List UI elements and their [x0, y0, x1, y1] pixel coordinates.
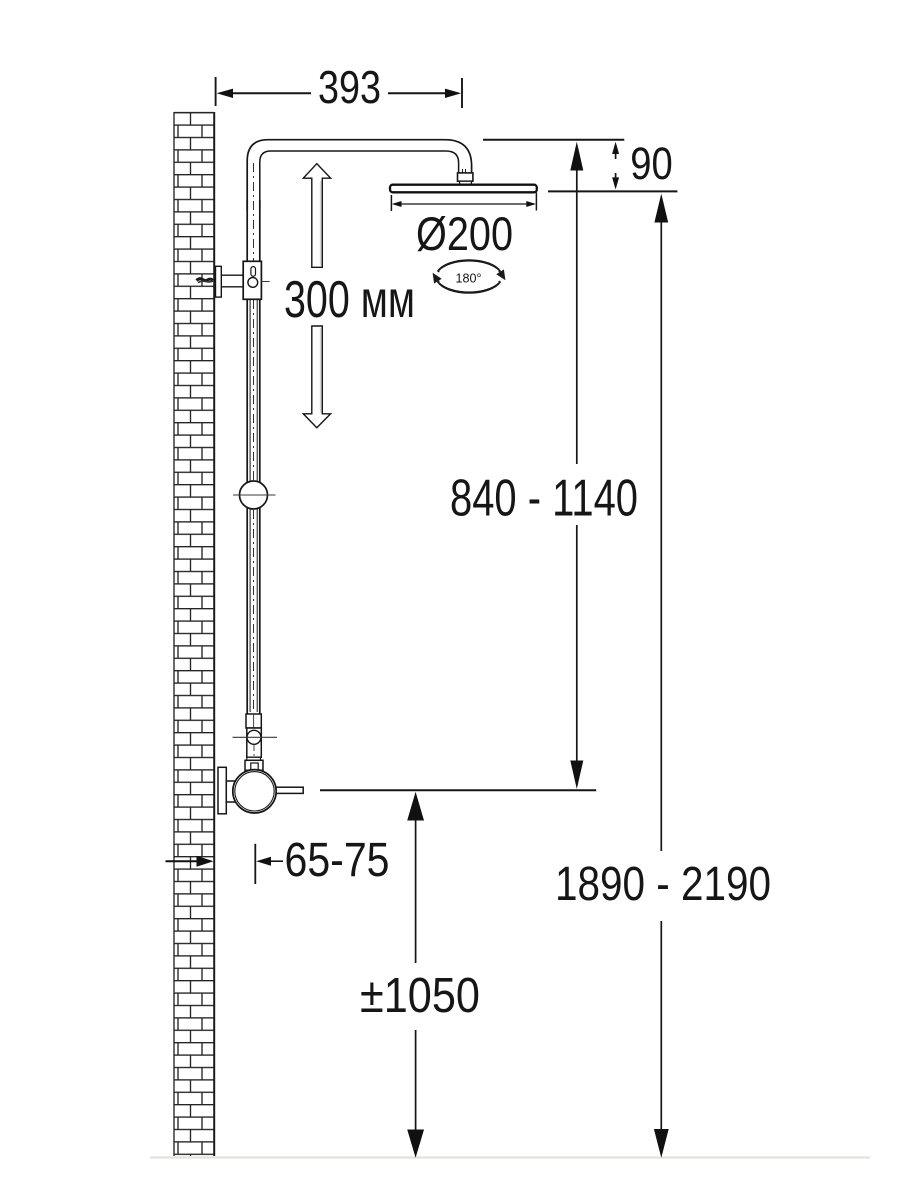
svg-text:±1050: ±1050 — [360, 969, 480, 1023]
svg-text:65-75: 65-75 — [285, 834, 390, 887]
svg-text:Ø200: Ø200 — [416, 207, 513, 260]
svg-text:90: 90 — [630, 138, 673, 189]
svg-text:300 мм: 300 мм — [284, 271, 415, 329]
svg-text:180°: 180° — [456, 271, 482, 286]
svg-text:840 - 1140: 840 - 1140 — [450, 470, 638, 528]
svg-text:1890 - 2190: 1890 - 2190 — [555, 858, 771, 911]
svg-text:393: 393 — [318, 61, 381, 113]
